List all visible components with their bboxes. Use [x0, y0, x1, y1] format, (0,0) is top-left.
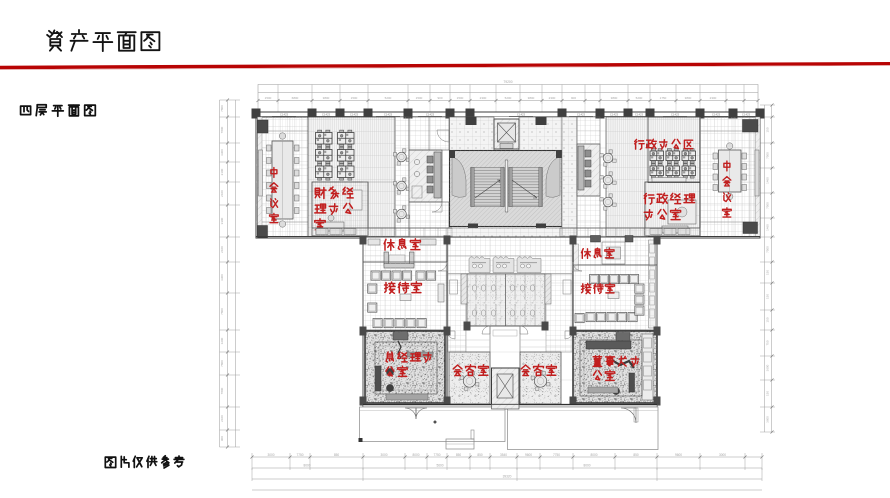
svg-text:C1423: C1423 — [280, 113, 289, 117]
svg-text:C1423: C1423 — [742, 113, 751, 117]
svg-text:3800: 3800 — [528, 96, 535, 100]
svg-text:3000: 3000 — [380, 453, 387, 457]
svg-text:150: 150 — [766, 127, 770, 132]
svg-text:9600: 9600 — [675, 453, 682, 457]
svg-text:8000: 8000 — [583, 464, 590, 468]
svg-text:2100: 2100 — [220, 168, 224, 175]
svg-text:3300: 3300 — [220, 274, 224, 281]
svg-text:C1423: C1423 — [426, 113, 435, 117]
svg-text:3800: 3800 — [611, 96, 618, 100]
svg-text:850: 850 — [456, 453, 462, 457]
svg-text:C1423: C1423 — [350, 113, 359, 117]
svg-text:3300: 3300 — [220, 217, 224, 224]
svg-text:5200: 5200 — [636, 96, 643, 100]
svg-text:1750: 1750 — [660, 96, 667, 100]
svg-text:5200: 5200 — [385, 96, 392, 100]
svg-text:C1423: C1423 — [610, 113, 619, 117]
svg-text:150: 150 — [766, 391, 770, 396]
svg-text:750: 750 — [766, 340, 770, 345]
svg-text:C1423: C1423 — [517, 113, 526, 117]
svg-text:3600: 3600 — [766, 364, 770, 371]
svg-text:3600: 3600 — [766, 416, 770, 423]
svg-text:2100: 2100 — [220, 246, 224, 253]
svg-text:7800: 7800 — [220, 308, 224, 315]
svg-text:C1423: C1423 — [671, 113, 680, 117]
svg-text:7500: 7500 — [766, 152, 770, 159]
svg-text:3000: 3000 — [719, 453, 726, 457]
svg-text:900: 900 — [437, 96, 442, 100]
svg-text:1500: 1500 — [351, 96, 358, 100]
svg-text:3300: 3300 — [220, 149, 224, 156]
svg-text:5600: 5600 — [436, 464, 443, 468]
svg-text:850: 850 — [334, 453, 340, 457]
svg-text:C1423: C1423 — [577, 113, 586, 117]
svg-text:7800: 7800 — [220, 126, 224, 133]
svg-text:2100: 2100 — [220, 190, 224, 197]
svg-text:C1423: C1423 — [322, 113, 331, 117]
svg-text:150: 150 — [766, 270, 770, 275]
svg-text:7800: 7800 — [220, 387, 224, 394]
svg-text:8000: 8000 — [412, 453, 419, 457]
svg-text:C1423: C1423 — [384, 113, 393, 117]
svg-text:6800: 6800 — [292, 96, 299, 100]
svg-text:3000: 3000 — [267, 453, 274, 457]
svg-text:900: 900 — [571, 96, 576, 100]
svg-text:3540: 3540 — [500, 453, 507, 457]
svg-text:7800: 7800 — [220, 105, 224, 112]
svg-text:2300: 2300 — [710, 96, 717, 100]
svg-text:5200: 5200 — [505, 96, 512, 100]
svg-text:7750: 7750 — [433, 453, 440, 457]
svg-text:C1423: C1423 — [712, 113, 721, 117]
svg-text:C1423: C1423 — [635, 113, 644, 117]
svg-text:7800: 7800 — [220, 360, 224, 367]
svg-text:7750: 7750 — [553, 453, 560, 457]
svg-text:1460: 1460 — [766, 177, 770, 184]
svg-text:1500: 1500 — [265, 96, 272, 100]
svg-text:850: 850 — [477, 453, 483, 457]
svg-text:7500: 7500 — [766, 246, 770, 253]
svg-text:2300: 2300 — [480, 96, 487, 100]
svg-text:1200: 1200 — [220, 337, 224, 344]
svg-text:8000: 8000 — [303, 464, 310, 468]
svg-text:7500: 7500 — [766, 202, 770, 209]
svg-text:1500: 1500 — [416, 96, 423, 100]
svg-text:1500: 1500 — [457, 96, 464, 100]
svg-text:1460: 1460 — [766, 224, 770, 231]
svg-text:3800: 3800 — [323, 96, 330, 100]
svg-text:150: 150 — [766, 317, 770, 322]
svg-text:7750: 7750 — [296, 453, 303, 457]
svg-text:9600: 9600 — [525, 453, 532, 457]
svg-text:850: 850 — [633, 453, 639, 457]
svg-text:2100: 2100 — [220, 415, 224, 422]
svg-text:900: 900 — [220, 436, 224, 441]
svg-text:39320: 39320 — [503, 475, 512, 479]
svg-text:3800: 3800 — [685, 96, 692, 100]
svg-text:8000: 8000 — [590, 453, 597, 457]
svg-text:150: 150 — [766, 294, 770, 299]
svg-text:2300: 2300 — [549, 96, 556, 100]
svg-text:79200: 79200 — [503, 80, 512, 84]
